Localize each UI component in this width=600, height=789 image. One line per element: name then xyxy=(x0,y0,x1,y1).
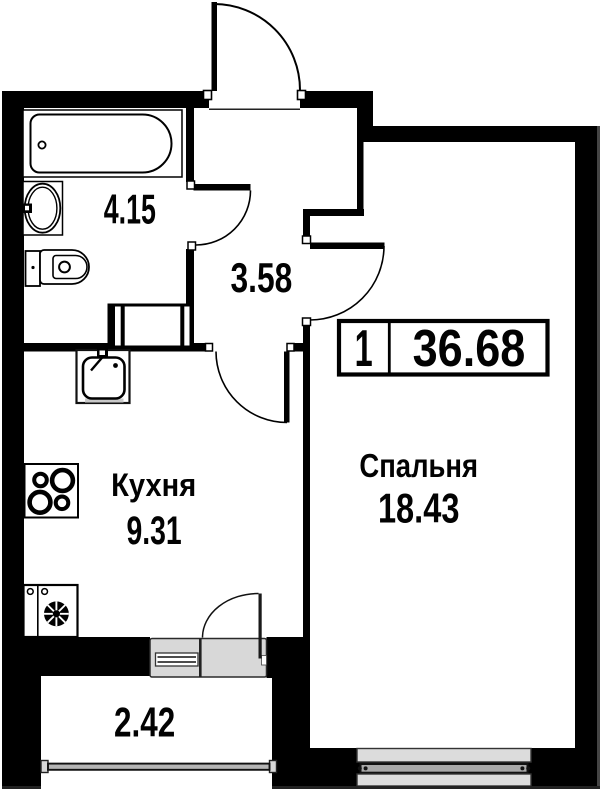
svg-text:9.31: 9.31 xyxy=(126,509,181,553)
svg-text:Кухня: Кухня xyxy=(111,468,196,504)
svg-text:18.43: 18.43 xyxy=(378,485,460,532)
svg-text:3.58: 3.58 xyxy=(231,255,293,301)
svg-text:Спальня: Спальня xyxy=(359,447,478,484)
svg-text:36.68: 36.68 xyxy=(413,320,526,377)
svg-text:1: 1 xyxy=(355,321,373,378)
svg-text:4.15: 4.15 xyxy=(104,187,156,233)
svg-text:2.42: 2.42 xyxy=(114,699,175,745)
